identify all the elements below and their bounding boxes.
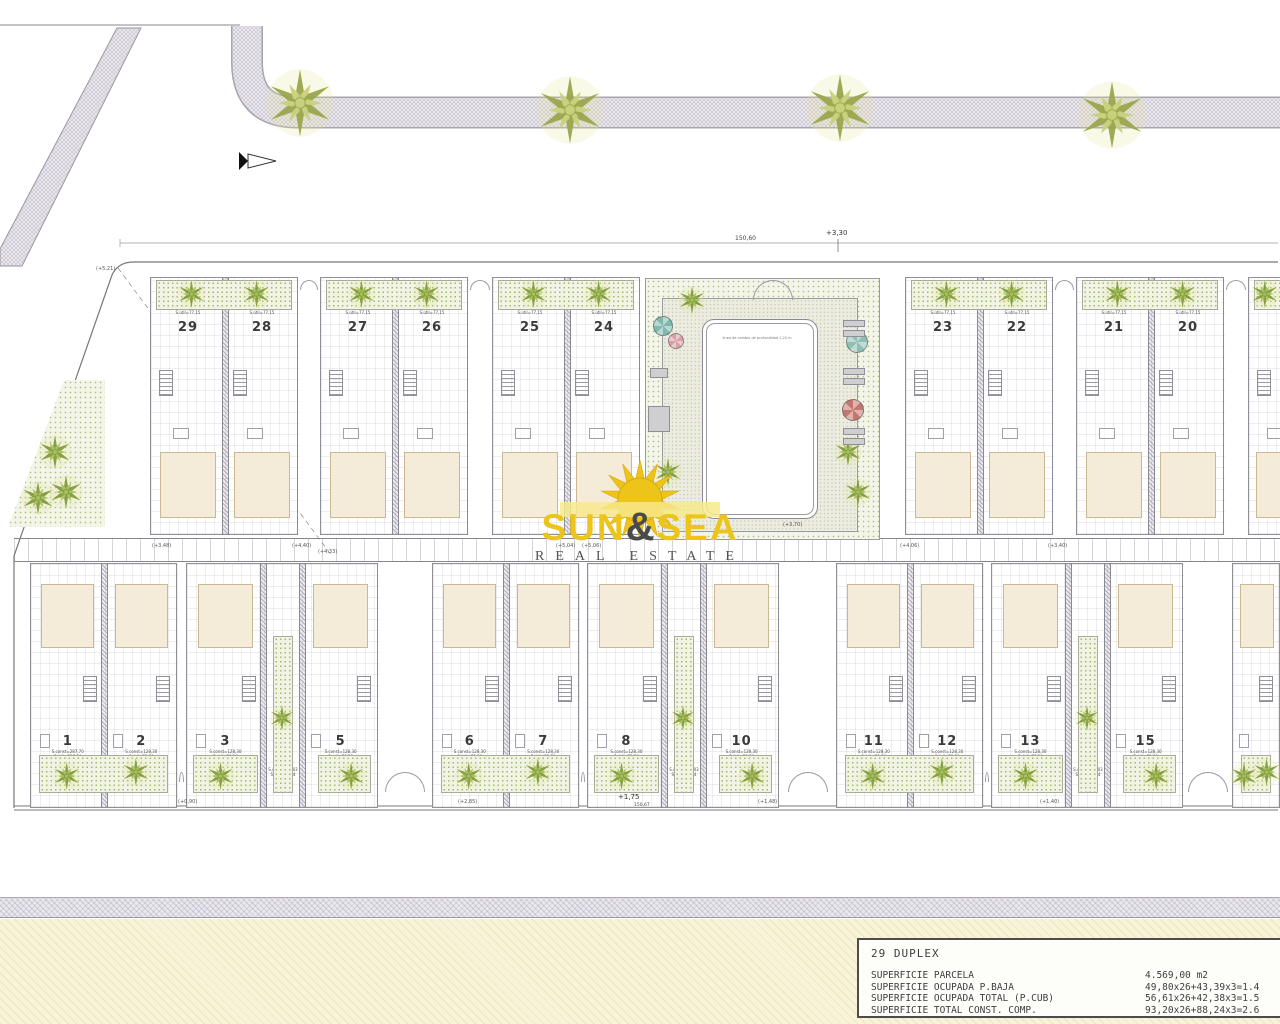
living-room	[443, 584, 496, 648]
living-room	[160, 452, 216, 518]
living-room	[915, 452, 971, 518]
site-plan-canvas: 29S.const=139,85S.útil=77,1528S.const=13…	[0, 0, 1280, 1024]
unit-number: 11	[837, 734, 911, 749]
unit-number: 6	[433, 734, 507, 749]
deck-level-label: (+3,70)	[783, 522, 802, 528]
dwelling-group-1-2: 1S.const=287,70S.útil=237,802S.const=128…	[30, 563, 177, 808]
spot-level-label: (+4,33)	[318, 549, 337, 555]
stair-symbol	[83, 676, 97, 702]
sunbed	[843, 330, 865, 337]
front-planter	[594, 755, 659, 793]
furniture-table	[589, 428, 605, 439]
swimming-pool-inner	[706, 323, 814, 515]
unit-number: 28	[225, 320, 299, 335]
unit-25: 25S.const=139,85S.útil=77,15	[493, 278, 567, 534]
spot-level-label: (+2,85)	[458, 799, 477, 805]
stair-symbol	[914, 370, 928, 396]
front-planter	[911, 280, 1047, 310]
unit-number: 21	[1077, 320, 1151, 335]
living-room	[1240, 584, 1275, 648]
front-planter	[326, 280, 462, 310]
stair-symbol	[357, 676, 371, 702]
front-planter	[193, 755, 258, 793]
spot-level-label: (+1,40)	[1040, 799, 1059, 805]
stair-symbol	[501, 370, 515, 396]
sunbed	[843, 378, 865, 385]
stair-symbol	[575, 370, 589, 396]
stair-symbol	[962, 676, 976, 702]
spot-level-label: (+0,90)	[178, 799, 197, 805]
unit-number: 29	[151, 320, 225, 335]
stair-symbol	[988, 370, 1002, 396]
sunbed	[843, 438, 865, 445]
dwelling-group-8-9-10: 8S.const=128,30S.útil=79,309S.const=88,0…	[587, 563, 779, 808]
stair-symbol	[156, 676, 170, 702]
dwelling-group-partial	[1232, 563, 1280, 808]
unit-number: 10	[703, 734, 780, 749]
dwelling-group-6-7: 6S.const=128,30S.útil=79,307S.const=128,…	[432, 563, 579, 808]
unit-number: 5	[302, 734, 379, 749]
furniture-table	[173, 428, 189, 439]
front-planter	[998, 755, 1063, 793]
living-room	[517, 584, 570, 648]
total-dimension-bottom: 150,67	[634, 803, 650, 808]
unit-28: 28S.const=139,85S.útil=77,15	[225, 278, 299, 534]
sunbed	[843, 368, 865, 375]
central-walkway	[14, 538, 1280, 562]
living-room	[1160, 452, 1216, 518]
dwelling-group-25-24: 25S.const=139,85S.útil=77,1524S.const=13…	[492, 277, 640, 535]
front-planter	[1241, 755, 1271, 793]
dwelling-group-13-14-15: 13S.const=128,30S.útil=79,3014S.const=88…	[991, 563, 1183, 808]
front-planter	[1082, 280, 1218, 310]
dwelling-group-partial	[1248, 277, 1280, 535]
umbrella-icon	[653, 316, 673, 336]
furniture-table	[928, 428, 944, 439]
side-planter	[674, 636, 693, 793]
spot-level-label: (+5,04)	[556, 543, 575, 549]
living-room	[330, 452, 386, 518]
living-room	[576, 452, 632, 518]
unit-number: 7	[507, 734, 581, 749]
unit-22: 22S.const=139,85S.útil=77,15	[980, 278, 1054, 534]
living-room	[989, 452, 1045, 518]
front-planter	[1123, 755, 1176, 793]
unit-number: 3	[187, 734, 264, 749]
unit-number: 13	[992, 734, 1069, 749]
living-room	[1256, 452, 1280, 518]
front-planter	[498, 280, 634, 310]
living-room	[714, 584, 769, 648]
living-room	[599, 584, 654, 648]
dwelling-group-3-4-5: 3S.const=128,30S.útil=79,304S.const=88,0…	[186, 563, 378, 808]
level-bottom-label: +1,75	[618, 793, 639, 801]
dwelling-group-23-22: 23S.const=139,85S.útil=77,1522S.const=13…	[905, 277, 1053, 535]
unit-number: 8	[588, 734, 665, 749]
spot-level-label: (+3,48)	[152, 543, 171, 549]
stair-symbol	[1162, 676, 1176, 702]
umbrella-icon	[842, 399, 864, 421]
living-room	[921, 584, 974, 648]
sunbed	[843, 428, 865, 435]
unit-29: 29S.const=139,85S.útil=77,15	[151, 278, 225, 534]
swimming-pool	[702, 319, 818, 519]
spot-level-label: (+5,21)	[96, 266, 115, 272]
unit-21: 21S.const=139,85S.útil=77,15	[1077, 278, 1151, 534]
sunbed	[843, 320, 865, 327]
stair-symbol	[558, 676, 572, 702]
unit-20: 20S.const=139,85S.útil=77,15	[1151, 278, 1225, 534]
furniture-table	[1099, 428, 1115, 439]
unit-number: 15	[1107, 734, 1184, 749]
dwelling-group-29-28: 29S.const=139,85S.útil=77,1528S.const=13…	[150, 277, 298, 535]
stair-symbol	[159, 370, 173, 396]
side-planter	[1078, 636, 1097, 793]
unit-number: 22	[980, 320, 1054, 335]
front-planter	[318, 755, 371, 793]
living-room	[502, 452, 558, 518]
stair-symbol	[403, 370, 417, 396]
living-room	[1118, 584, 1173, 648]
front-planter	[845, 755, 974, 793]
spot-level-label: (+4,06)	[900, 543, 919, 549]
living-room	[313, 584, 368, 648]
unit-24: 24S.const=139,85S.útil=77,15	[567, 278, 641, 534]
pool-deck	[662, 298, 858, 532]
living-room	[1003, 584, 1058, 648]
furniture-table	[515, 428, 531, 439]
side-planter	[273, 636, 292, 793]
stair-symbol	[329, 370, 343, 396]
front-planter	[39, 755, 168, 793]
living-room	[847, 584, 900, 648]
umbrella-icon	[668, 333, 684, 349]
furniture-table	[1173, 428, 1189, 439]
furniture-table	[1267, 428, 1280, 439]
dwelling-group-11-12: 11S.const=128,30S.útil=79,3012S.const=12…	[836, 563, 983, 808]
dwelling-group-21-20: 21S.const=139,85S.útil=77,1520S.const=13…	[1076, 277, 1224, 535]
unit-number: 2	[105, 734, 179, 749]
stair-symbol	[889, 676, 903, 702]
unit-26: 26S.const=139,85S.útil=77,15	[395, 278, 469, 534]
furniture-table	[1002, 428, 1018, 439]
unit-number: 25	[493, 320, 567, 335]
spot-level-label: (+5,06)	[582, 543, 601, 549]
furniture-fixture	[1239, 734, 1249, 748]
stair-symbol	[758, 676, 772, 702]
dwelling-group-27-26: 27S.const=139,85S.útil=77,1526S.const=13…	[320, 277, 468, 535]
stair-symbol	[643, 676, 657, 702]
unit-partial	[1249, 278, 1280, 534]
living-room	[1086, 452, 1142, 518]
living-room	[115, 584, 168, 648]
stair-symbol	[1159, 370, 1173, 396]
living-room	[41, 584, 94, 648]
stair-symbol	[1085, 370, 1099, 396]
unit-number: 1	[31, 734, 105, 749]
spot-level-label: (+3,40)	[1048, 543, 1067, 549]
furniture-table	[417, 428, 433, 439]
spot-level-label: (+4,40)	[292, 543, 311, 549]
furniture-table	[247, 428, 263, 439]
stair-symbol	[1259, 676, 1273, 702]
unit-number: 27	[321, 320, 395, 335]
sunbed	[648, 406, 670, 432]
living-room	[198, 584, 253, 648]
unit-number: 24	[567, 320, 641, 335]
pool-depth-note: línea de cambio de profundidad 1,20 m	[706, 336, 808, 340]
front-planter	[719, 755, 772, 793]
stair-symbol	[1047, 676, 1061, 702]
spot-level-label: (+1,48)	[758, 799, 777, 805]
stair-symbol	[485, 676, 499, 702]
unit-number: 23	[906, 320, 980, 335]
furniture-table	[343, 428, 359, 439]
stair-symbol	[242, 676, 256, 702]
front-planter	[156, 280, 292, 310]
total-dimension-top: 150,60	[735, 235, 756, 242]
unit-number: 26	[395, 320, 469, 335]
living-room	[404, 452, 460, 518]
stair-symbol	[233, 370, 247, 396]
sunbed	[650, 368, 668, 378]
front-planter	[1254, 280, 1280, 310]
level-top-label: +3,30	[826, 229, 847, 237]
unit-number: 12	[911, 734, 985, 749]
living-room	[234, 452, 290, 518]
stair-symbol	[1257, 370, 1271, 396]
front-planter	[441, 755, 570, 793]
unit-23: 23S.const=139,85S.útil=77,15	[906, 278, 980, 534]
unit-number: 20	[1151, 320, 1225, 335]
unit-27: 27S.const=139,85S.útil=77,15	[321, 278, 395, 534]
